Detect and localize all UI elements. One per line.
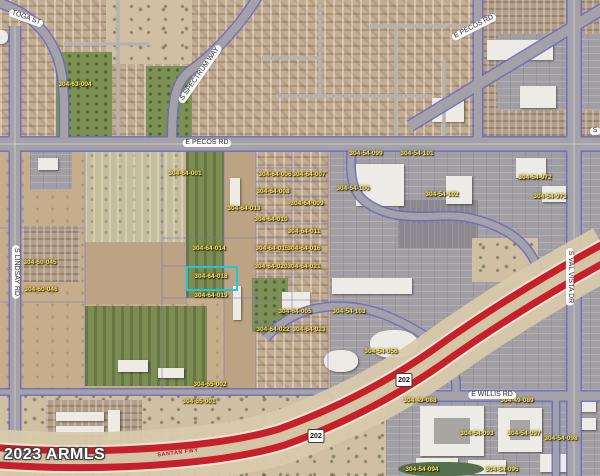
- apn-label: 304-64-014: [192, 246, 225, 253]
- apn-label: 304-64-019: [194, 293, 227, 300]
- apn-label: 304-54-099: [349, 151, 382, 158]
- apn-label: 304-64-020: [254, 264, 287, 271]
- apn-label: 304-64-021: [287, 264, 320, 271]
- apn-label: 304-64-008: [256, 189, 289, 196]
- apn-label: 304-54-103: [332, 309, 365, 316]
- apn-label: 304-54-102: [425, 192, 458, 199]
- roads-layer: [0, 0, 600, 476]
- apn-label: 304-54-101: [400, 151, 433, 158]
- apn-label: 304-64-016: [287, 246, 320, 253]
- apn-label: 304-54-094: [405, 467, 438, 474]
- apn-label: 304-64-001: [168, 171, 201, 178]
- apn-label: 304-54-100: [336, 186, 369, 193]
- apn-label: 304-54-095: [485, 467, 518, 474]
- apn-label: 304-54-093: [460, 431, 493, 438]
- road-label: E PECOS RD: [182, 139, 231, 147]
- apn-label: 304-54-097: [507, 431, 540, 438]
- apn-label: 304-64-007: [292, 172, 325, 179]
- apn-label: 304-64-009: [290, 201, 323, 208]
- apn-label: 304-64-005: [278, 309, 311, 316]
- apn-label: 304-64-013: [227, 206, 260, 213]
- apn-label: 304-64-011: [288, 229, 321, 236]
- route-202-shield: 202: [396, 373, 413, 387]
- apn-label: 304-54-056: [364, 349, 397, 356]
- apn-label: 304-60-046: [24, 287, 57, 294]
- apn-label: 304-64-015: [255, 246, 288, 253]
- apn-label: 304-64-022: [256, 327, 289, 334]
- road-label: S LINDSAY RD: [12, 245, 20, 299]
- map-canvas[interactable]: SANTAN FWY 2023 ARMLS 304-63-004304-60-0…: [0, 0, 600, 476]
- apn-label: 304-54-972: [518, 175, 551, 182]
- apn-label: 304-64-010: [254, 217, 287, 224]
- apn-label: 304-60-045: [23, 260, 56, 267]
- freeway-202: [0, 252, 600, 459]
- apn-label: 304-64-006: [258, 172, 291, 179]
- apn-label: 304-64-018: [194, 274, 227, 281]
- apn-label: 304-64-023: [292, 327, 325, 334]
- apn-label: 304-49-088: [403, 398, 436, 405]
- armls-watermark: 2023 ARMLS: [4, 446, 105, 464]
- road-label: E WILLIS RD: [468, 391, 516, 399]
- apn-label: 304-63-004: [58, 82, 91, 89]
- apn-label: 304-54-098: [544, 436, 577, 443]
- road-label: S VAL VISTA DR: [566, 248, 574, 306]
- route-202-shield: 202: [308, 429, 325, 443]
- apn-label: 304-54-973: [533, 194, 566, 201]
- apn-label: 304-65-001: [182, 399, 215, 406]
- apn-label: 304-65-002: [193, 382, 226, 389]
- road-label: S: [590, 127, 600, 135]
